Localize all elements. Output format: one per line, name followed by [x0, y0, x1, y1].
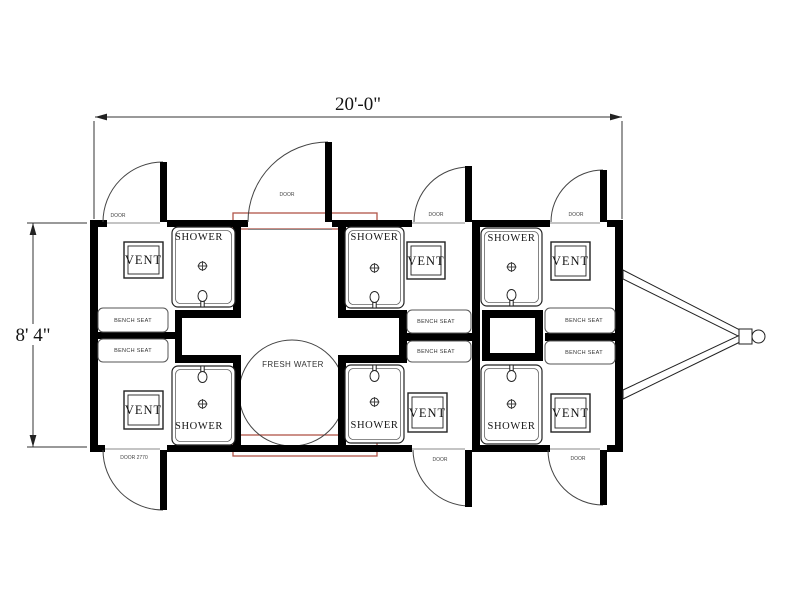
- vent-top-right: VENT: [551, 242, 590, 280]
- door-leaf: [325, 142, 332, 222]
- vent-label: VENT: [125, 253, 162, 267]
- door-leaf: [160, 450, 167, 510]
- door-top-center: DOOR: [248, 142, 332, 222]
- bench-seat-middle-2: BENCH SEAT: [407, 341, 471, 362]
- vent-label: VENT: [552, 406, 589, 420]
- bench-seat-label: BENCH SEAT: [114, 318, 152, 324]
- door-bottom-left: DOOR 2770: [103, 450, 167, 510]
- bench-seat-right-1: BENCH SEAT: [545, 308, 615, 333]
- fresh-water-tank: FRESH WATER: [239, 340, 345, 446]
- door-label: DOOR: [111, 213, 126, 219]
- dim-arrow-left-icon: [95, 114, 107, 121]
- door-entry-label: DOOR 2770: [120, 455, 148, 461]
- hitch-coupler: [739, 329, 752, 344]
- hitch-ball-icon: [752, 330, 765, 343]
- vent-bottom-middle: VENT: [408, 393, 447, 432]
- shower-label: SHOWER: [488, 233, 536, 244]
- vent-label: VENT: [125, 403, 162, 417]
- vent-bottom-right: VENT: [551, 394, 590, 432]
- dim-arrow-right-icon: [610, 114, 622, 121]
- door-leaf: [465, 166, 472, 222]
- door-label: DOOR: [280, 192, 295, 198]
- width-dimension-label: 20'-0": [335, 94, 381, 115]
- shower-label: SHOWER: [175, 232, 223, 243]
- door-leaf: [600, 170, 607, 222]
- shower-stall-bottom-middle: SHOWER: [345, 365, 404, 443]
- bench-seat-label: BENCH SEAT: [417, 349, 455, 355]
- bench-seat-label: BENCH SEAT: [565, 318, 603, 324]
- bench-seat-right-2: BENCH SEAT: [545, 341, 615, 364]
- door-bottom-middle-right: DOOR: [413, 450, 472, 507]
- door-bottom-right: DOOR: [548, 450, 607, 505]
- shower-label: SHOWER: [488, 421, 536, 432]
- trailer-floor-plan: 20'-0" 8' 4" FRESH WATER: [0, 0, 800, 613]
- door-swing-arc: [248, 142, 328, 222]
- bench-seat-label: BENCH SEAT: [565, 350, 603, 356]
- door-leaf: [600, 450, 607, 505]
- bench-seat-left-1: BENCH SEAT: [98, 308, 168, 332]
- fresh-water-label: FRESH WATER: [262, 360, 324, 369]
- door-label: DOOR: [429, 212, 444, 218]
- door-leaf: [160, 162, 167, 222]
- dimension-left: 8' 4": [13, 223, 87, 447]
- vent-top-middle: VENT: [407, 242, 445, 279]
- bench-seat-label: BENCH SEAT: [114, 348, 152, 354]
- dimension-top: 20'-0": [94, 94, 622, 219]
- vent-label: VENT: [407, 254, 444, 268]
- shower-label: SHOWER: [351, 232, 399, 243]
- bench-seat-middle-1: BENCH SEAT: [407, 310, 471, 333]
- shower-stall-top-right: SHOWER: [481, 228, 542, 306]
- shower-stall-bottom-right: SHOWER: [481, 365, 542, 444]
- door-label: DOOR: [569, 212, 584, 218]
- shower-label: SHOWER: [351, 420, 399, 431]
- vent-label: VENT: [409, 406, 446, 420]
- door-top-middle-right: DOOR: [414, 166, 472, 222]
- bench-seat-left-2: BENCH SEAT: [98, 339, 168, 362]
- door-label: DOOR: [571, 456, 586, 462]
- vent-label: VENT: [552, 254, 589, 268]
- vent-top-left: VENT: [124, 242, 163, 278]
- trailer-hitch: [623, 270, 765, 399]
- door-leaf: [465, 450, 472, 507]
- bench-seat-label: BENCH SEAT: [417, 319, 455, 325]
- door-label: DOOR: [433, 457, 448, 463]
- shower-label: SHOWER: [175, 421, 223, 432]
- height-dimension-label: 8' 4": [16, 325, 51, 346]
- dim-arrow-down-icon: [30, 435, 37, 447]
- shower-stall-bottom-left: SHOWER: [172, 366, 235, 445]
- door-top-right: DOOR: [551, 170, 607, 222]
- shower-stall-top-middle: SHOWER: [345, 227, 404, 308]
- door-top-left: DOOR: [103, 162, 167, 222]
- vent-bottom-left: VENT: [124, 391, 163, 429]
- floor-plan-canvas: 20'-0" 8' 4" FRESH WATER: [0, 0, 800, 613]
- dim-arrow-up-icon: [30, 223, 37, 235]
- shower-stall-top-left: SHOWER: [172, 227, 235, 307]
